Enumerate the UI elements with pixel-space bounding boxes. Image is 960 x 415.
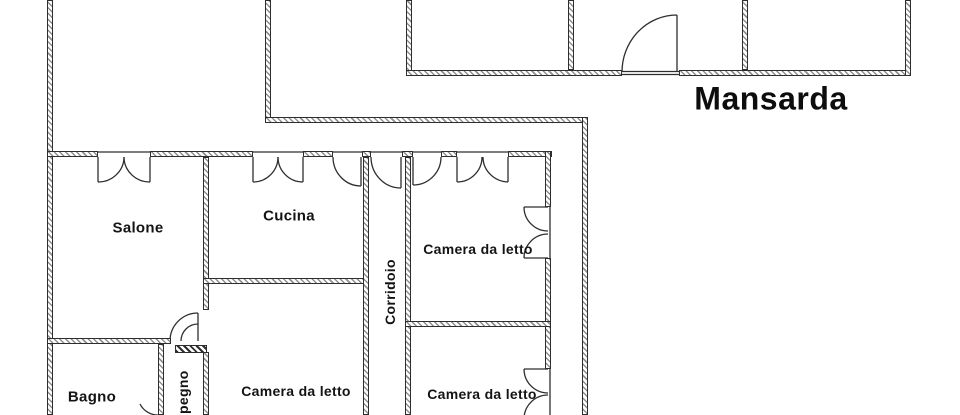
door-swing-glyph xyxy=(483,157,508,182)
wall-segment xyxy=(742,0,748,70)
wall-segment xyxy=(265,117,588,123)
door-swing-glyph xyxy=(333,157,361,186)
wall-segment xyxy=(265,0,271,122)
wall-segment xyxy=(406,0,412,74)
wall-segment xyxy=(150,151,253,157)
wall-segment xyxy=(47,338,171,344)
room-label-salone: Salone xyxy=(113,220,164,237)
door-swing-glyph xyxy=(622,15,677,72)
wall-segment xyxy=(582,117,588,415)
wall-segment xyxy=(679,70,911,76)
entrance-threshold xyxy=(175,345,207,353)
wall-segment xyxy=(363,157,369,415)
wall-segment xyxy=(47,151,98,157)
wall-segment xyxy=(441,151,457,157)
room-label-cucina: Cucina xyxy=(263,208,315,225)
wall-segment xyxy=(303,151,333,157)
wall-segment xyxy=(405,157,411,415)
wall-segment xyxy=(47,0,53,415)
door-swing-glyph xyxy=(524,207,548,231)
door-swing-glyph xyxy=(140,404,159,415)
room-label-camera-da-letto-2: Camera da letto xyxy=(241,383,351,399)
wall-segment xyxy=(545,151,551,207)
wall-segment xyxy=(203,278,369,284)
wall-segment xyxy=(545,258,551,369)
door-swing-glyph xyxy=(170,313,198,341)
wall-segment xyxy=(158,344,164,415)
wall-segment xyxy=(405,321,551,327)
floor-title-mansarda: Mansarda xyxy=(694,81,847,118)
door-swing-glyph xyxy=(181,324,198,341)
wall-segment xyxy=(905,0,911,76)
floorplan-doors-drawing xyxy=(0,0,960,415)
wall-segment xyxy=(568,0,574,70)
room-label-camera-da-letto-1: Camera da letto xyxy=(423,241,533,257)
room-label-bagno: Bagno xyxy=(68,389,116,406)
door-swing-glyph xyxy=(413,157,441,185)
room-label-corridoio: Corridoio xyxy=(382,259,398,325)
wall-segment xyxy=(203,157,209,310)
door-swing-glyph xyxy=(457,157,482,182)
room-label-camera-da-letto-3: Camera da letto xyxy=(427,386,537,402)
wall-segment xyxy=(203,352,209,415)
door-swing-glyph xyxy=(98,157,124,182)
door-swing-glyph xyxy=(253,157,278,182)
door-swing-glyph xyxy=(124,157,150,182)
floor-plan-canvas: MansardaSaloneCucinaCorridoioCamera da l… xyxy=(0,0,960,415)
wall-segment xyxy=(406,70,622,76)
room-label-disimpegno: Disimpegno xyxy=(175,370,191,415)
door-swing-glyph xyxy=(278,157,303,182)
door-swing-glyph xyxy=(371,157,401,188)
